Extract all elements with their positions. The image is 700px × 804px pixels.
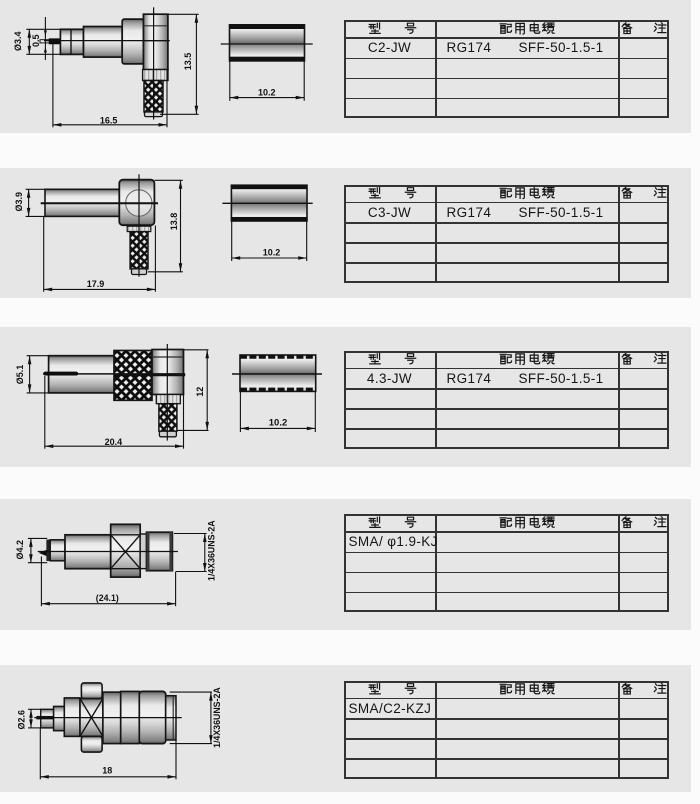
svg-text:10.2: 10.2	[263, 247, 281, 257]
svg-text:Ø4.2: Ø4.2	[15, 540, 25, 560]
svg-text:Ø3.9: Ø3.9	[14, 192, 24, 212]
svg-text:13.8: 13.8	[169, 213, 179, 231]
svg-text:13.5: 13.5	[183, 53, 193, 71]
svg-text:16.5: 16.5	[100, 115, 118, 125]
svg-text:17.9: 17.9	[87, 279, 105, 289]
svg-text:(24.1): (24.1)	[96, 593, 119, 603]
svg-text:10.2: 10.2	[269, 418, 288, 429]
svg-text:18: 18	[102, 766, 112, 776]
svg-text:Ø5.1: Ø5.1	[15, 365, 25, 385]
svg-text:1/4X36UNS-2A: 1/4X36UNS-2A	[212, 687, 222, 748]
svg-text:Ø3.4: Ø3.4	[13, 32, 23, 52]
svg-text:0.5: 0.5	[31, 35, 41, 48]
svg-text:12: 12	[195, 387, 205, 397]
svg-text:1/4X36UNS-2A: 1/4X36UNS-2A	[207, 520, 217, 581]
svg-text:20.4: 20.4	[105, 437, 123, 447]
svg-text:Ø2.6: Ø2.6	[16, 710, 26, 730]
svg-text:10.2: 10.2	[258, 87, 276, 97]
